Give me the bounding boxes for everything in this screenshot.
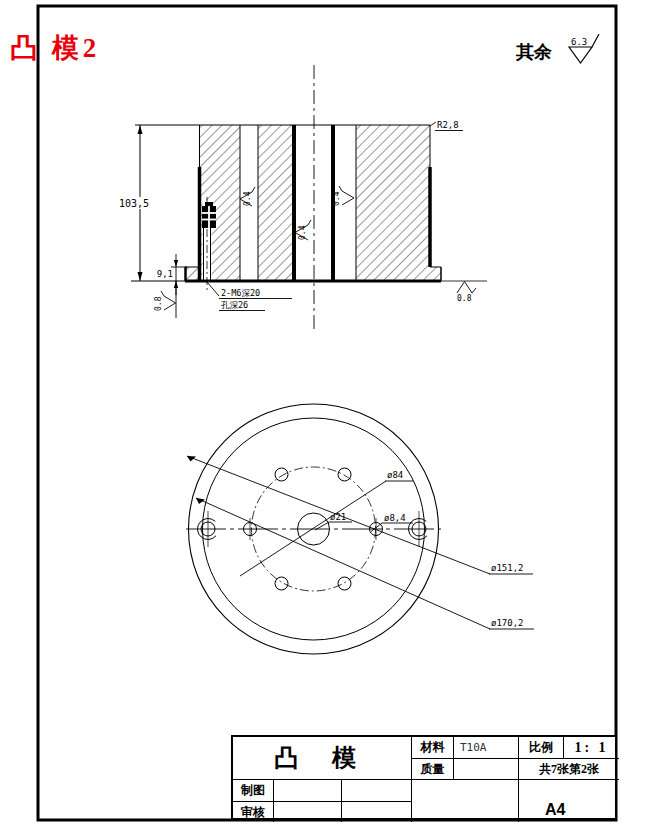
mass-value-cell <box>454 759 519 780</box>
dim-height: 103,5 <box>118 125 150 281</box>
checked-by-name-cell <box>274 802 342 822</box>
outer-dia-text: ø170,2 <box>491 618 524 628</box>
roughness-bore-left-text: 0.4 <box>243 191 252 206</box>
thread-callout: 2-M6深20 孔深26 <box>207 282 292 311</box>
drawn-by-label-cell: 制图 <box>233 780 274 802</box>
section-view: 103,5 9,1 R2,8 <box>118 65 487 330</box>
bolt-hole-dia-text: ø8,4 <box>384 513 406 523</box>
thread-callout-line1: 2-M6深20 <box>221 288 260 298</box>
material-label-cell: 材料 <box>412 737 454 759</box>
drawn-by-date-cell <box>342 780 412 802</box>
bottom-view: ø84 ø21 ø8,4 ø151,2 ø170,2 <box>186 404 534 654</box>
drawing-sheet: 103,5 9,1 R2,8 <box>0 0 654 830</box>
drawn-by-name-cell <box>274 780 342 802</box>
material-value-cell: T10A <box>454 737 519 759</box>
paper-size-cell: A4 <box>519 780 619 822</box>
title-block: 凸 模 材料 T10A 比例 1: 1 质量 共7张第2张 制图 审核 A4 <box>231 735 617 820</box>
step-dia-text: ø151,2 <box>491 563 524 573</box>
page-title: 凸 模2 <box>10 30 100 66</box>
surface-note-label: 其余 <box>516 40 552 64</box>
fillet-text: R2,8 <box>437 120 459 130</box>
scale-label-cell: 比例 <box>519 737 564 759</box>
dim-height-text: 103,5 <box>119 198 149 209</box>
scale-value-cell: 1: 1 <box>564 737 619 759</box>
fillet-callout: R2,8 <box>430 120 463 131</box>
dim-step: 9,1 <box>154 254 187 295</box>
extra-empty-cell <box>412 780 519 822</box>
roughness-base-left-text: 0.8 <box>154 296 163 311</box>
surface-finish-symbol: 6.3 <box>569 34 599 63</box>
mass-label-cell: 质量 <box>412 759 454 780</box>
checked-by-date-cell <box>342 802 412 822</box>
dim-step-text: 9,1 <box>157 269 173 279</box>
bolt-circle-dia-text: ø84 <box>387 470 403 480</box>
center-hole-dia-text: ø21 <box>330 512 346 522</box>
surface-finish-value: 6.3 <box>571 37 587 47</box>
bottom-view-leaders <box>187 456 534 629</box>
roughness-bore-right-text: 0.4 <box>332 191 341 206</box>
sheet-info-cell: 共7张第2张 <box>519 759 619 780</box>
roughness-base-right-text: 0.8 <box>457 294 472 303</box>
checked-by-label-cell: 审核 <box>233 802 274 822</box>
part-name-cell: 凸 模 <box>233 737 412 780</box>
roughness-bore-center-text: 0.4 <box>298 225 307 240</box>
sheet-frame <box>38 6 616 820</box>
cad-drawing-canvas: 103,5 9,1 R2,8 <box>0 0 654 830</box>
thread-callout-line2: 孔深26 <box>221 300 248 310</box>
